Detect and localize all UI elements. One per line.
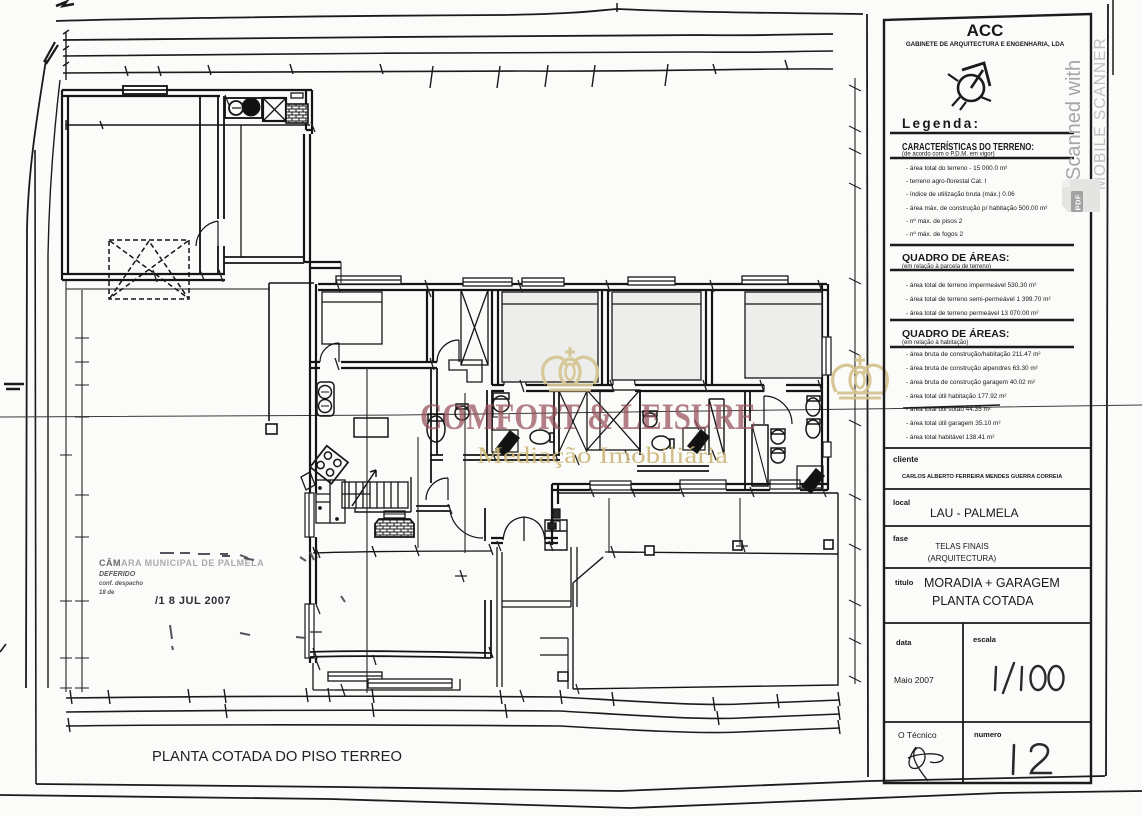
svg-text:PLANTA COTADA DO PISO TERREO: PLANTA COTADA DO PISO TERREO [152,748,402,765]
svg-text:- índice de utilização bruta (: - índice de utilização bruta (máx.) 0.06 [906,191,1015,198]
svg-text:escala: escala [973,635,997,644]
svg-text:- área total de terreno semi-p: - área total de terreno semi-permeável 1… [906,296,1051,303]
svg-text:numero: numero [974,730,1002,739]
svg-text:DEFERIDO: DEFERIDO [99,571,136,578]
svg-text:COMFORT & LEISURE: COMFORT & LEISURE [420,397,756,438]
svg-text:conf. despacho: conf. despacho [99,581,143,587]
svg-text:Legenda:: Legenda: [902,116,978,131]
svg-text:ACC: ACC [967,21,1004,40]
svg-text:- área bruta de construção/hab: - área bruta de construção/habitação 211… [906,351,1041,358]
svg-text:QUADRO DE ÁREAS:: QUADRO DE ÁREAS: [902,251,1009,264]
svg-text:- nº máx. de fogos 2: - nº máx. de fogos 2 [906,231,963,238]
svg-text:(de acordo com o P.D.M. em vig: (de acordo com o P.D.M. em vigor) [902,152,995,158]
svg-text:- área total de terreno permeá: - área total de terreno permeável 13 070… [906,310,1039,317]
svg-text:- área total habitável 138.: - área total habitável 138.41 m² [906,434,994,441]
svg-text:- área total útil habitação: - área total útil habitação 177.92 m² [906,393,1007,400]
svg-text:- área total de terreno imperm: - área total de terreno impermeável 530.… [906,282,1036,289]
svg-text:local: local [893,498,910,507]
svg-text:fase: fase [893,534,908,543]
svg-text:CARLOS ALBERTO FERREIRA MENDES: CARLOS ALBERTO FERREIRA MENDES GUERRA CO… [902,474,1062,480]
svg-text:- área bruta de construção gar: - área bruta de construção garagem 40.02… [906,379,1035,386]
svg-text:QUADRO DE ÁREAS:: QUADRO DE ÁREAS: [902,327,1009,340]
svg-text:PLANTA COTADA: PLANTA COTADA [932,594,1034,608]
svg-text:- área máx. de construção p/ h: - área máx. de construção p/ habitação 5… [906,205,1047,212]
svg-text:(ARQUITECTURA): (ARQUITECTURA) [928,554,997,563]
svg-text:GABINETE DE ARQUITECTURA E ENG: GABINETE DE ARQUITECTURA E ENGENHARIA, L… [906,41,1065,48]
svg-text:PDF: PDF [1074,194,1083,211]
svg-text:MOBILE SCANNER: MOBILE SCANNER [1092,37,1109,190]
svg-text:TELAS FINAIS: TELAS FINAIS [935,542,988,551]
svg-text:- área bruta de construção alp: - área bruta de construção alpendres 63.… [906,365,1038,372]
svg-text:18 de: 18 de [99,590,115,596]
svg-text:(em relação à habitação): (em relação à habitação) [902,340,968,346]
svg-text:cliente: cliente [893,455,919,464]
svg-text:Scanned with: Scanned with [1063,60,1085,180]
svg-text:LAU - PALMELA: LAU - PALMELA [930,506,1018,520]
svg-text:MORADIA + GARAGEM: MORADIA + GARAGEM [924,576,1060,590]
svg-text:/1 8 JUL 2007: /1 8 JUL 2007 [155,595,231,607]
svg-text:- área total útil garagem 3: - área total útil garagem 35.10 m² [906,420,1001,427]
svg-text:Mediação Imobiliária: Mediação Imobiliária [477,443,728,468]
svg-text:Maio 2007: Maio 2007 [894,675,934,685]
svg-text:titulo: titulo [895,578,914,587]
svg-text:O Técnico: O Técnico [898,730,937,740]
svg-text:- terreno agro-florestal Ca: - terreno agro-florestal Cat. I [906,178,986,185]
svg-text:- área total do terreno - 15: - área total do terreno - 15 000.0 m² [906,165,1007,172]
svg-text:(em relação à parcela de terre: (em relação à parcela de terreno) [902,264,991,270]
svg-text:data: data [896,638,912,647]
svg-text:CÂMARA MUNICIPAL DE PALMELA: CÂMARA MUNICIPAL DE PALMELA [99,557,264,568]
svg-text:- nº máx. de pisos 2: - nº máx. de pisos 2 [906,218,963,225]
